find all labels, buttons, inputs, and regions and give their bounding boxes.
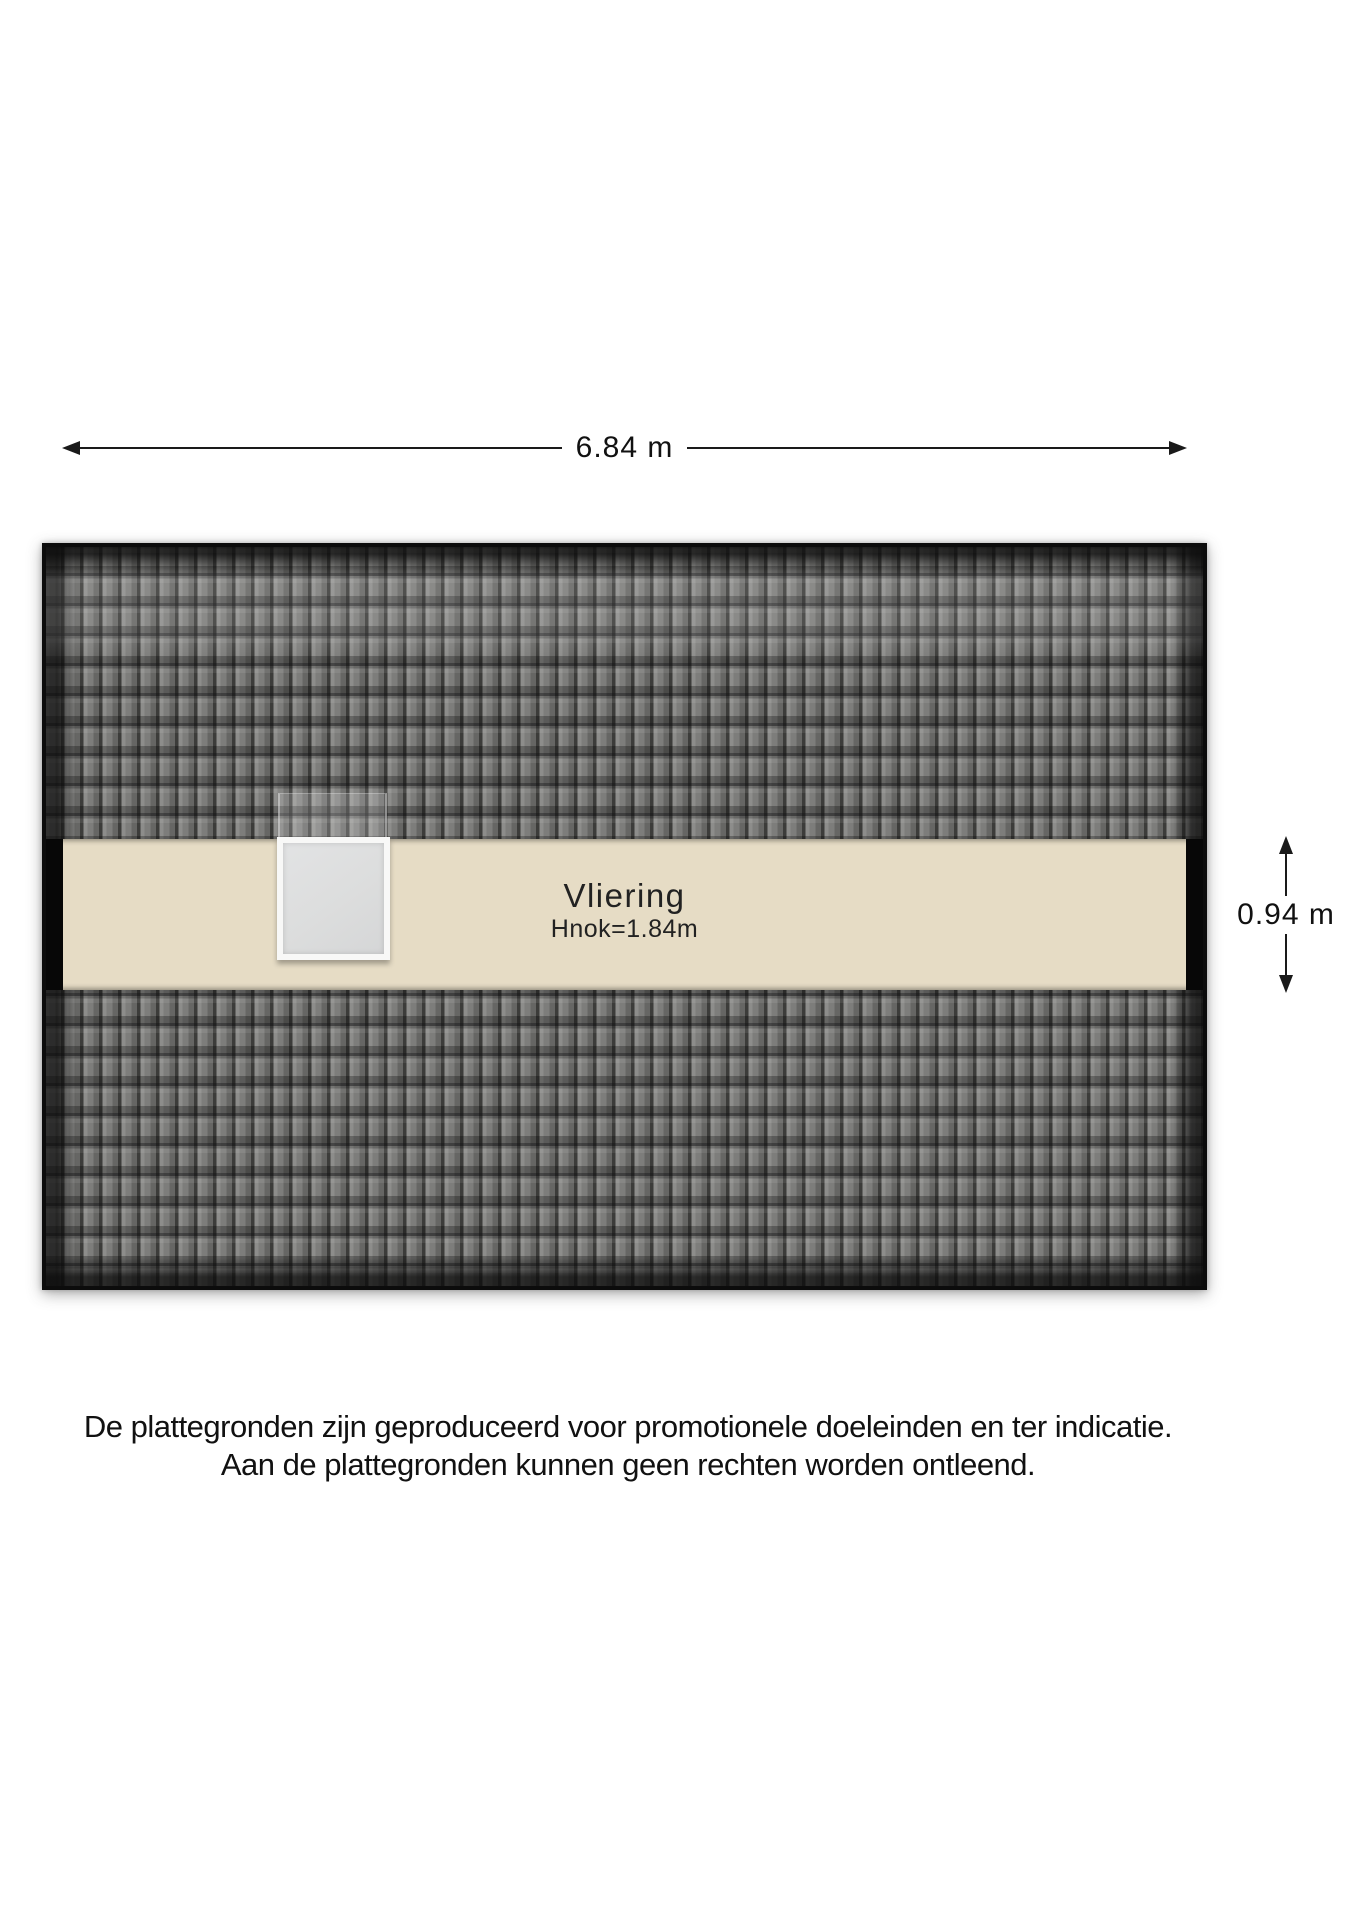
dimension-line-left [80, 447, 562, 449]
width-dimension: 6.84 m [62, 430, 1187, 466]
disclaimer-line-1: De plattegronden zijn geproduceerd voor … [0, 1408, 1256, 1446]
floorplan-page: 6.84 m Vliering Hnok=1.84m 0.94 m De pla… [0, 0, 1358, 1920]
arrow-down-icon [1279, 975, 1293, 993]
disclaimer: De plattegronden zijn geproduceerd voor … [0, 1408, 1256, 1484]
arrow-right-icon [1169, 441, 1187, 455]
dimension-line-right [687, 447, 1169, 449]
width-dimension-label: 6.84 m [562, 431, 688, 465]
roof-plan: Vliering Hnok=1.84m [42, 543, 1207, 1290]
arrow-left-icon [62, 441, 80, 455]
room-name: Vliering [46, 878, 1203, 914]
dimension-line-top [1285, 854, 1287, 896]
room-height-label: Hnok=1.84m [46, 914, 1203, 944]
height-dimension: 0.94 m [1234, 836, 1338, 993]
arrow-up-icon [1279, 836, 1293, 854]
dimension-line-bottom [1285, 934, 1287, 976]
skylight-shaft [278, 793, 387, 838]
disclaimer-line-2: Aan de plattegronden kunnen geen rechten… [0, 1446, 1256, 1484]
height-dimension-label: 0.94 m [1237, 898, 1335, 932]
room-label: Vliering Hnok=1.84m [46, 878, 1203, 944]
